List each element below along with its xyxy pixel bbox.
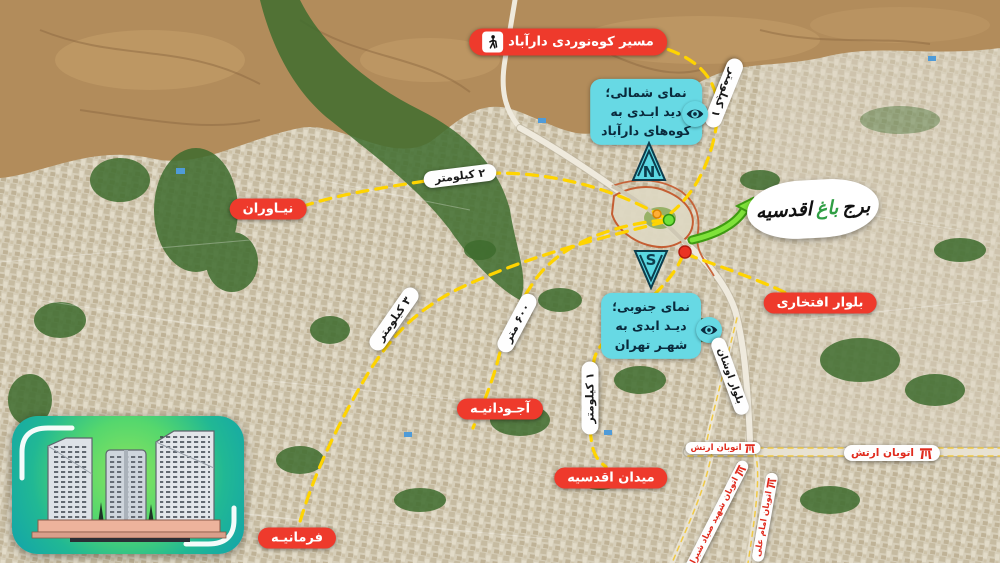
artesh-hwy-label: اتوبان ارتش (685, 442, 760, 454)
south-view-callout: نمای جنوبی؛ دیـد ابدی به شهـر تهران (601, 293, 701, 359)
map-infographic: مسیر کوه‌نوردی دارآباد ۱ کیلومتر نمای شم… (0, 0, 1000, 563)
curved-arrow-icon (692, 198, 753, 240)
towers-illustration (12, 416, 244, 554)
ajoudanieh-label: آجـودانیـه (457, 399, 543, 420)
south-arrow-icon: S (633, 248, 669, 290)
eye-icon (682, 101, 708, 127)
site-green-dot (664, 215, 675, 226)
aghdasieh-square-label: میدان اقدسیه (554, 468, 667, 489)
highway-icon (919, 447, 933, 459)
artesh-hwy-label: اتوبان ارتش (844, 445, 940, 461)
site-orange-dot (653, 210, 661, 218)
distance-1km-south: ۱ کیلومتر (582, 362, 599, 435)
building-render-card (12, 416, 244, 554)
farmanieh-label: فرمانیـه (258, 528, 336, 549)
niavaran-label: نیـاوران (230, 199, 307, 220)
highway-icon (765, 477, 777, 490)
route-eftekhari-line (686, 254, 786, 293)
hiker-icon (482, 32, 503, 53)
north-arrow-icon: N (631, 141, 667, 183)
site-red-dot (679, 246, 691, 258)
eftekhari-blvd-label: بلوار افتخاری (764, 293, 877, 314)
highway-icon (745, 443, 756, 453)
mountain-route-label: مسیر کوه‌نوردی دارآباد (469, 29, 667, 56)
